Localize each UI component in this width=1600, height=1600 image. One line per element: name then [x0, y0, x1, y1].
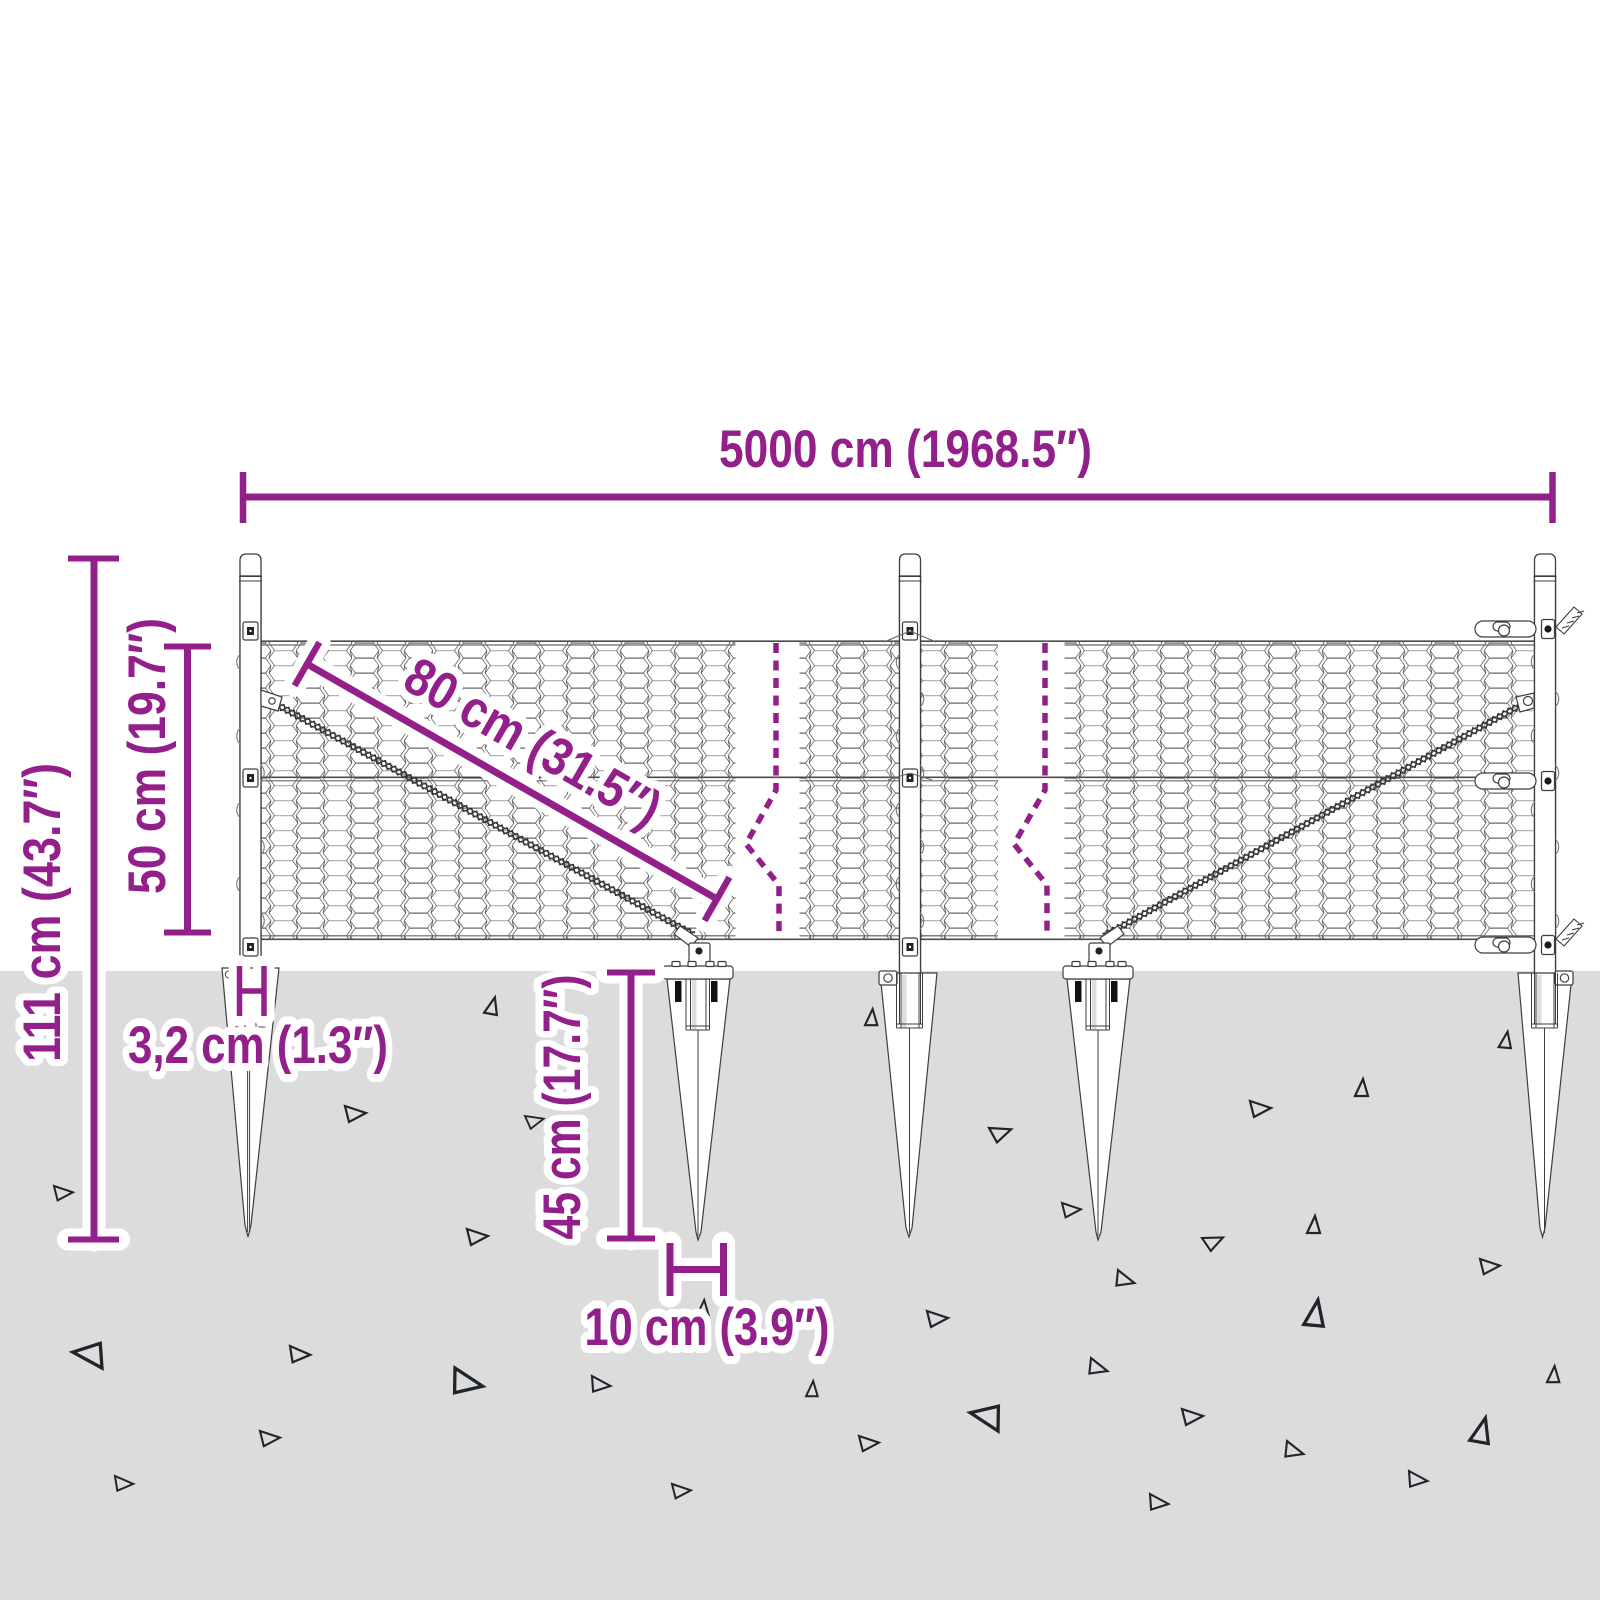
svg-text:10 cm (3.9″): 10 cm (3.9″) — [585, 1298, 830, 1357]
svg-text:50 cm (19.7″): 50 cm (19.7″) — [118, 618, 177, 894]
svg-text:111 cm (43.7″): 111 cm (43.7″) — [13, 763, 72, 1062]
svg-text:5000 cm (1968.5″): 5000 cm (1968.5″) — [719, 420, 1092, 479]
svg-text:45 cm (17.7″): 45 cm (17.7″) — [533, 975, 592, 1240]
svg-text:3,2 cm (1.3″): 3,2 cm (1.3″) — [128, 1016, 388, 1075]
